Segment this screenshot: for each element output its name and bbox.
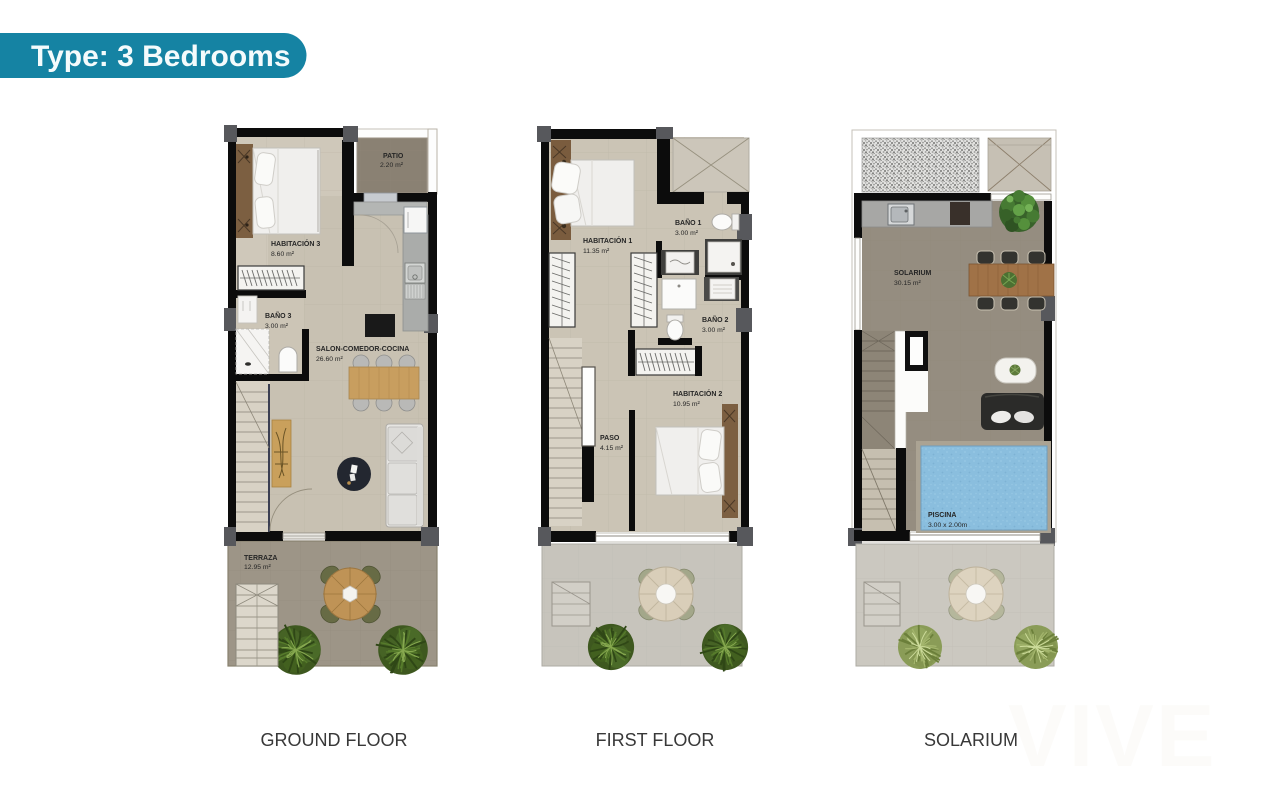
svg-text:3.00 x 2.00m: 3.00 x 2.00m: [928, 522, 968, 529]
svg-text:3.00 m²: 3.00 m²: [675, 230, 699, 237]
svg-text:VIVE: VIVE: [1008, 686, 1217, 785]
svg-text:SOLARIUM: SOLARIUM: [924, 730, 1018, 750]
svg-text:BAÑO 1: BAÑO 1: [675, 218, 702, 227]
svg-text:11.35 m²: 11.35 m²: [583, 248, 610, 255]
svg-text:3.00 m²: 3.00 m²: [702, 327, 726, 334]
svg-text:26.60 m²: 26.60 m²: [316, 356, 344, 363]
svg-text:GROUND FLOOR: GROUND FLOOR: [260, 730, 407, 750]
svg-text:PISCINA: PISCINA: [928, 512, 956, 519]
svg-text:4.15 m²: 4.15 m²: [600, 445, 624, 452]
svg-text:2.20 m²: 2.20 m²: [380, 162, 404, 169]
svg-text:BAÑO 2: BAÑO 2: [702, 315, 729, 324]
svg-text:TERRAZA: TERRAZA: [244, 555, 277, 562]
svg-text:FIRST FLOOR: FIRST FLOOR: [596, 730, 715, 750]
svg-text:30.15 m²: 30.15 m²: [894, 280, 922, 287]
svg-text:PATIO: PATIO: [383, 153, 404, 160]
svg-text:Type: 3 Bedrooms: Type: 3 Bedrooms: [31, 40, 291, 73]
svg-text:HABITACIÓN 2: HABITACIÓN 2: [673, 389, 722, 398]
svg-text:SOLARIUM: SOLARIUM: [894, 270, 932, 277]
svg-text:HABITACIÓN 3: HABITACIÓN 3: [271, 239, 320, 248]
svg-text:10.95 m²: 10.95 m²: [673, 401, 701, 408]
svg-text:12.95 m²: 12.95 m²: [244, 564, 272, 571]
svg-text:BAÑO 3: BAÑO 3: [265, 311, 292, 320]
svg-text:SALON-COMEDOR-COCINA: SALON-COMEDOR-COCINA: [316, 346, 409, 353]
svg-text:PASO: PASO: [600, 435, 620, 442]
svg-text:HABITACIÓN 1: HABITACIÓN 1: [583, 236, 632, 245]
svg-text:8.60 m²: 8.60 m²: [271, 251, 295, 258]
